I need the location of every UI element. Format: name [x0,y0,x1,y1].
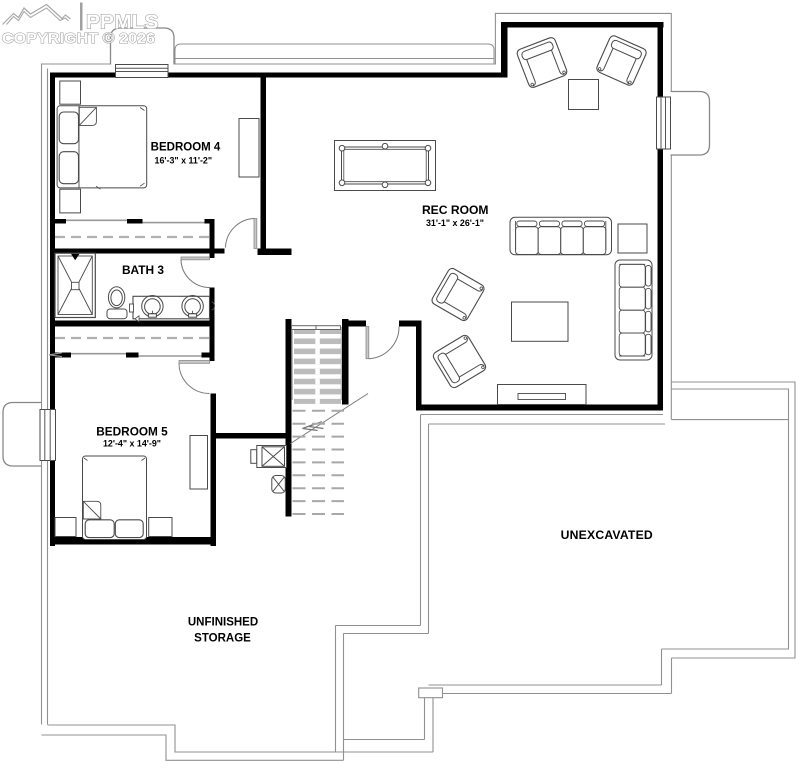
svg-text:BEDROOM 5: BEDROOM 5 [96,425,168,439]
svg-text:UNFINISHED: UNFINISHED [188,617,258,629]
svg-text:COPYRIGHT © 2026: COPYRIGHT © 2026 [2,30,155,47]
svg-text:12'-4" x 14'-9": 12'-4" x 14'-9" [103,439,161,449]
svg-text:BATH 3: BATH 3 [122,263,164,277]
svg-text:16'-3" x 11'-2": 16'-3" x 11'-2" [155,156,213,166]
svg-text:REC ROOM: REC ROOM [422,203,489,217]
svg-text:31'-1" x 26'-1": 31'-1" x 26'-1" [426,218,484,228]
svg-text:STORAGE: STORAGE [194,633,251,645]
svg-text:BEDROOM 4: BEDROOM 4 [151,142,221,154]
svg-text:UNEXCAVATED: UNEXCAVATED [561,528,653,542]
